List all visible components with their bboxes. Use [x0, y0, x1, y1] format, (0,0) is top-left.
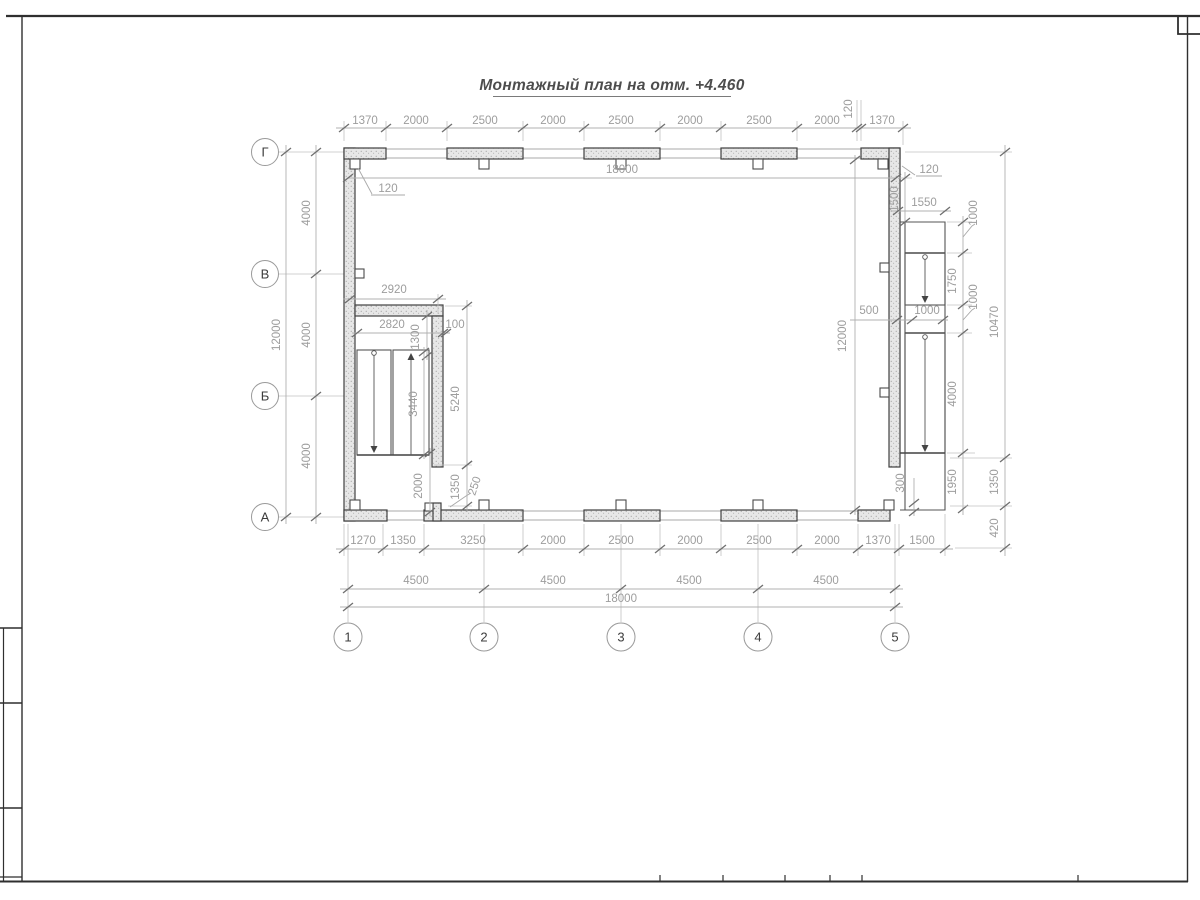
dim-stair-1350: 1350	[450, 474, 462, 500]
axis-label-col-1: 1	[344, 630, 351, 645]
dim-bot-2000b: 2000	[677, 535, 703, 547]
dim-top-2000b: 2000	[540, 115, 566, 127]
sheet-background	[0, 0, 1200, 900]
dim-left-4000b: 4000	[301, 322, 313, 348]
dim-bot-2500b: 2500	[746, 535, 772, 547]
dim-stair-100: 100	[445, 319, 464, 331]
dim-right-1550: 1550	[911, 197, 937, 209]
dim-bot-2000c: 2000	[814, 535, 840, 547]
dim-stair-2920: 2920	[381, 284, 407, 296]
dim-bot-1370: 1370	[865, 535, 891, 547]
dim-top-2500a: 2500	[472, 115, 498, 127]
axis-label-row-g: Г	[261, 145, 268, 160]
axis-label-row-b: Б	[261, 389, 270, 404]
dim-right-10470: 10470	[989, 306, 1001, 338]
dim-top-2500b: 2500	[608, 115, 634, 127]
dim-bot-overall: 18000	[605, 593, 637, 605]
dim-bot-1350: 1350	[390, 535, 416, 547]
dim-right-1000b: 1000	[968, 284, 980, 310]
dim-right-1950: 1950	[947, 469, 959, 495]
dim-top-2000a: 2000	[403, 115, 429, 127]
dim-left-overall: 12000	[271, 319, 283, 351]
dim-right-1500: 1500	[889, 186, 901, 212]
dim-wall-thickness-tr: 120	[919, 164, 938, 176]
dim-top-2000c: 2000	[677, 115, 703, 127]
dim-stair-1300: 1300	[410, 324, 422, 350]
dim-bot-2000a: 2000	[540, 535, 566, 547]
dim-right-500: 500	[859, 305, 878, 317]
dim-right-1350: 1350	[989, 469, 1001, 495]
dim-right-300: 300	[895, 473, 907, 492]
axis-label-col-4: 4	[754, 630, 761, 645]
axis-label-col-2: 2	[480, 630, 487, 645]
dim-span-4500d: 4500	[813, 575, 839, 587]
dim-span-4500b: 4500	[540, 575, 566, 587]
dim-right-4000: 4000	[947, 381, 959, 407]
axis-label-row-a: А	[261, 510, 270, 525]
dim-interior-height: 12000	[837, 320, 849, 352]
dim-top-2500c: 2500	[746, 115, 772, 127]
dim-bot-1270: 1270	[350, 535, 376, 547]
dim-right-420: 420	[989, 518, 1001, 537]
dim-stair-2820: 2820	[379, 319, 405, 331]
dim-top-1370: 1370	[352, 115, 378, 127]
dim-top-overall: 18000	[606, 164, 638, 176]
drawing-title-text: Монтажный план на отм. +4.460	[479, 77, 744, 94]
floor-plan-drawing: Монтажный план на отм. +4.460 Г В Б А 1 …	[0, 0, 1200, 900]
drawing-sheet: Монтажный план на отм. +4.460 Г В Б А 1 …	[0, 0, 1200, 900]
dim-stair-5240: 5240	[450, 386, 462, 412]
dim-bot-2500a: 2500	[608, 535, 634, 547]
dim-top-120: 120	[843, 99, 855, 118]
stairwell-wall-right	[432, 316, 443, 467]
dim-bot-3250: 3250	[460, 535, 486, 547]
dim-span-4500c: 4500	[676, 575, 702, 587]
dim-stair-3440: 3440	[408, 391, 420, 417]
drawing-title: Монтажный план на отм. +4.460	[479, 77, 744, 97]
dim-stair-2000: 2000	[413, 473, 425, 499]
axis-label-col-3: 3	[617, 630, 624, 645]
dim-bot-1500: 1500	[909, 535, 935, 547]
wall-left	[344, 148, 355, 521]
door-jamb	[433, 503, 441, 521]
axis-label-col-5: 5	[891, 630, 898, 645]
dim-right-1000a: 1000	[968, 200, 980, 226]
dim-right-1750: 1750	[947, 268, 959, 294]
dim-top-2000d: 2000	[814, 115, 840, 127]
axis-label-row-v: В	[261, 267, 270, 282]
dim-left-4000c: 4000	[301, 443, 313, 469]
dim-wall-thickness-tl: 120	[378, 183, 397, 195]
dim-span-4500a: 4500	[403, 575, 429, 587]
dim-right-1000c: 1000	[914, 305, 940, 317]
dim-top-1370b: 1370	[869, 115, 895, 127]
dim-left-4000a: 4000	[301, 200, 313, 226]
